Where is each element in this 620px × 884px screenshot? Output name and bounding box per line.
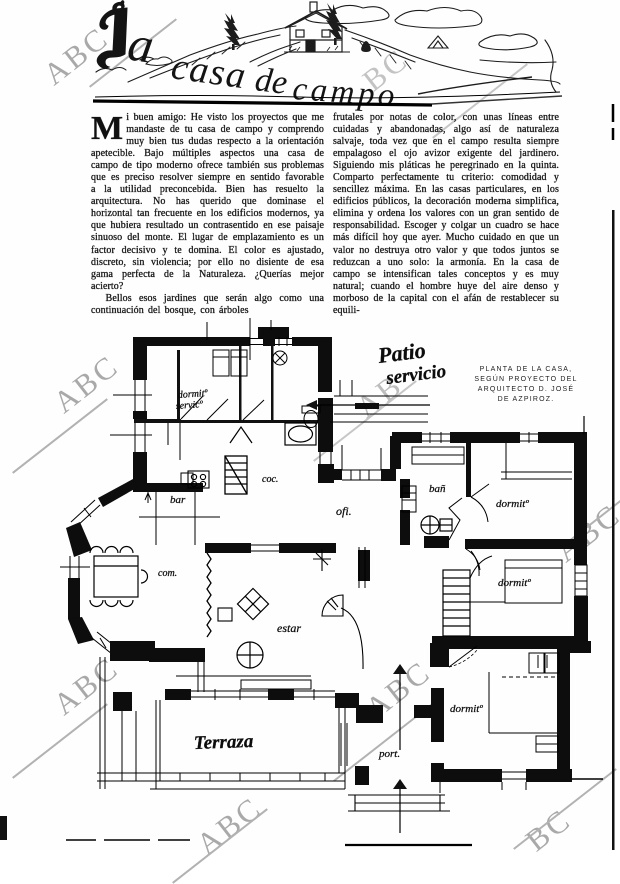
svg-text:dormitº: dormitº — [498, 577, 531, 589]
svg-text:SEGÚN PROYECTO DEL: SEGÚN PROYECTO DEL — [474, 374, 577, 383]
svg-text:PLANTA DE LA CASA,: PLANTA DE LA CASA, — [480, 366, 573, 373]
svg-text:Terraza: Terraza — [193, 731, 254, 754]
svg-text:ofi.: ofi. — [336, 504, 352, 518]
svg-text:bar: bar — [170, 494, 186, 506]
svg-text:servicº: servicº — [175, 399, 204, 412]
svg-text:DE AZPIROZ.: DE AZPIROZ. — [498, 396, 555, 403]
svg-text:estar: estar — [277, 621, 301, 635]
svg-text:coc.: coc. — [262, 474, 278, 485]
svg-text:dormitº: dormitº — [496, 498, 529, 510]
svg-text:dormitº: dormitº — [450, 703, 483, 715]
svg-text:com.: com. — [158, 568, 177, 579]
svg-text:port.: port. — [378, 748, 400, 760]
svg-text:bañ: bañ — [429, 483, 446, 495]
svg-text:ARQUITECTO D. JOSÉ: ARQUITECTO D. JOSÉ — [478, 384, 575, 393]
